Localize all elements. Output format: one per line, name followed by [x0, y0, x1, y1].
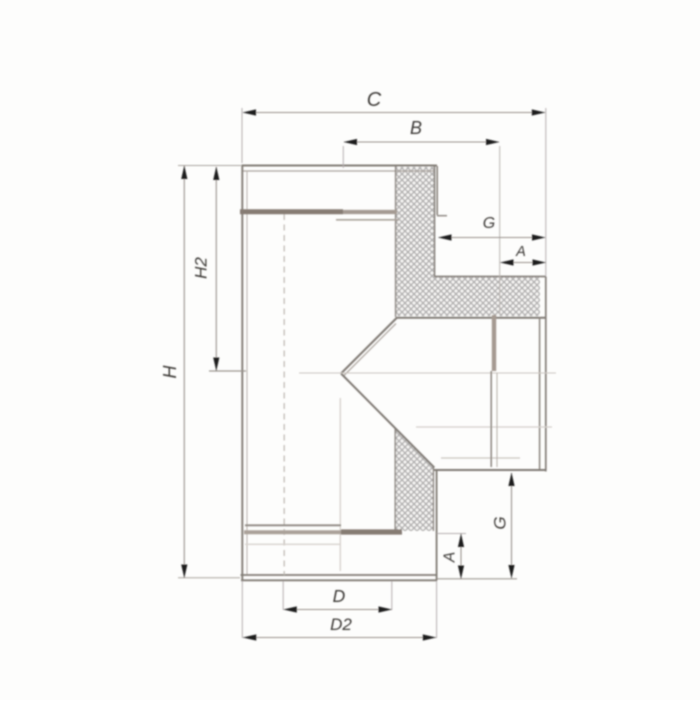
svg-text:D2: D2 — [330, 615, 352, 634]
svg-text:C: C — [367, 89, 382, 111]
svg-text:A: A — [442, 552, 459, 563]
svg-text:B: B — [410, 118, 422, 138]
svg-text:G: G — [491, 516, 510, 529]
svg-text:H: H — [160, 365, 180, 379]
svg-text:G: G — [483, 215, 495, 232]
svg-text:A: A — [515, 244, 526, 260]
svg-text:H2: H2 — [192, 257, 211, 279]
svg-text:D: D — [333, 586, 346, 606]
